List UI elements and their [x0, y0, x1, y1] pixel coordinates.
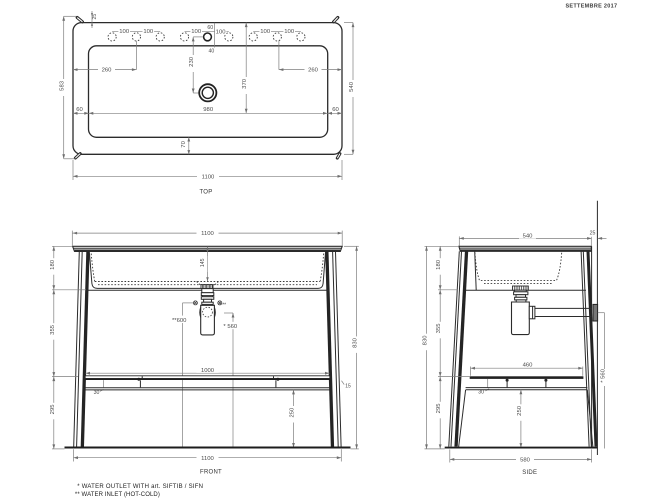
svg-text:15: 15	[345, 384, 351, 390]
svg-text:180: 180	[436, 259, 442, 270]
svg-text:* 560: * 560	[601, 368, 607, 382]
svg-text:25: 25	[92, 14, 98, 20]
svg-text:SIDE: SIDE	[522, 470, 537, 476]
svg-text:**: **	[222, 303, 226, 309]
svg-text:** WATER INLET (HOT-COLD): ** WATER INLET (HOT-COLD)	[75, 492, 160, 498]
svg-text:100: 100	[284, 29, 295, 35]
svg-text:540: 540	[523, 234, 534, 240]
svg-text:1100: 1100	[201, 231, 214, 237]
svg-text:1100: 1100	[202, 174, 215, 180]
svg-text:70: 70	[181, 140, 187, 147]
svg-text:60: 60	[207, 25, 213, 31]
svg-text:260: 260	[308, 68, 319, 74]
svg-text:250: 250	[290, 407, 296, 418]
svg-text:260: 260	[102, 68, 113, 74]
svg-text:30: 30	[94, 390, 100, 396]
svg-text:830: 830	[423, 335, 429, 346]
svg-text:355: 355	[436, 323, 442, 334]
svg-text:830: 830	[353, 337, 359, 348]
svg-text:100: 100	[191, 29, 202, 35]
svg-text:295: 295	[50, 404, 56, 415]
svg-text:60: 60	[332, 107, 339, 113]
svg-text:355: 355	[50, 324, 56, 335]
svg-text:230: 230	[189, 56, 195, 67]
svg-text:250: 250	[517, 405, 523, 416]
svg-text:25: 25	[590, 231, 596, 237]
svg-text:100: 100	[143, 29, 154, 35]
svg-text:580: 580	[520, 458, 531, 464]
svg-text:145: 145	[200, 258, 206, 267]
svg-text:100: 100	[216, 30, 227, 36]
svg-text:FRONT: FRONT	[200, 470, 222, 476]
svg-text:TOP: TOP	[200, 189, 213, 195]
svg-text:* WATER OUTLET WITH art. SIFT: * WATER OUTLET WITH art. SIFTIB / SIFN	[77, 484, 203, 490]
svg-text:* 560: * 560	[223, 324, 237, 330]
svg-text:100: 100	[119, 29, 130, 35]
svg-text:370: 370	[242, 78, 248, 89]
svg-text:540: 540	[349, 81, 355, 92]
svg-text:**600: **600	[172, 318, 187, 324]
svg-text:295: 295	[436, 403, 442, 414]
svg-text:460: 460	[523, 362, 534, 368]
svg-text:60: 60	[76, 107, 83, 113]
svg-text:1000: 1000	[201, 368, 215, 374]
svg-text:1100: 1100	[201, 456, 214, 462]
svg-text:40: 40	[209, 49, 215, 55]
svg-text:100: 100	[260, 29, 271, 35]
svg-text:980: 980	[203, 107, 214, 113]
svg-text:583: 583	[60, 80, 66, 91]
svg-text:SETTEMBRE 2017: SETTEMBRE 2017	[565, 3, 617, 9]
svg-text:180: 180	[50, 259, 56, 270]
